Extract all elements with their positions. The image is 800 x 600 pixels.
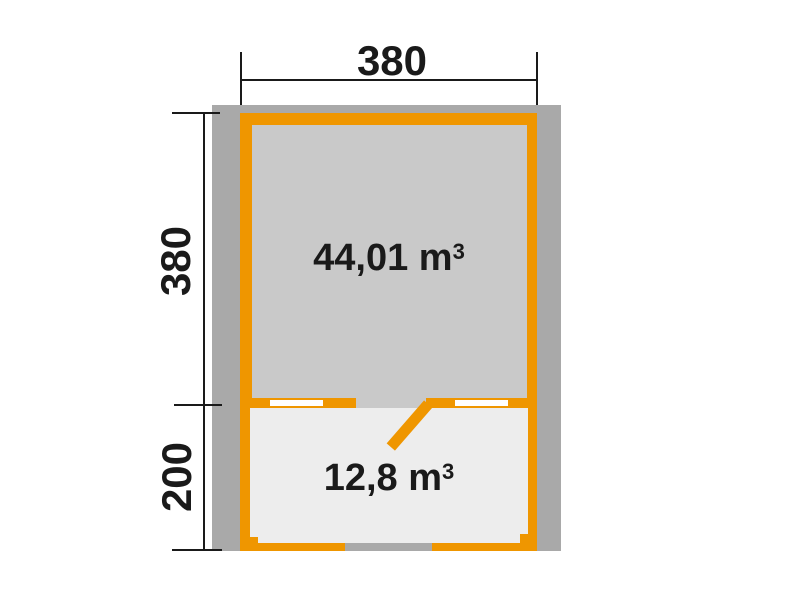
- annex-corner-post-left: [250, 537, 258, 544]
- annex-wall-right: [528, 408, 537, 551]
- dimension-top-tick-right: [536, 52, 538, 105]
- dimension-left-tick-bottom: [172, 549, 222, 551]
- annex-volume-label: 12,8 m3: [289, 457, 489, 504]
- annex-volume-value: 12,8 m: [324, 457, 442, 499]
- main-room-volume-value: 44,01 m: [313, 237, 452, 279]
- annex-wall-left: [240, 408, 250, 551]
- dimension-top-tick-left: [240, 52, 242, 105]
- window-left: [270, 400, 323, 406]
- dimension-top-line: [241, 79, 537, 81]
- dimension-left-upper-depth-label: 380: [155, 201, 197, 321]
- dimension-left-line: [203, 113, 205, 550]
- annex-front-wall-left: [240, 543, 345, 551]
- dimension-top-width-label: 380: [292, 40, 492, 82]
- annex-front-wall-right: [432, 543, 537, 551]
- annex-corner-post-right: [520, 534, 528, 544]
- main-room-volume-superscript: 3: [453, 239, 465, 264]
- dimension-left-tick-top: [172, 112, 220, 114]
- door-opening: [356, 398, 426, 408]
- window-right: [455, 400, 508, 406]
- floorplan-canvas: 380 380 200 44,01 m3 12,8 m3: [0, 0, 800, 600]
- dimension-left-lower-depth-label: 200: [156, 417, 198, 537]
- main-room-volume-label: 44,01 m3: [289, 237, 489, 284]
- annex-volume-superscript: 3: [442, 459, 454, 484]
- dimension-left-tick-middle: [174, 404, 222, 406]
